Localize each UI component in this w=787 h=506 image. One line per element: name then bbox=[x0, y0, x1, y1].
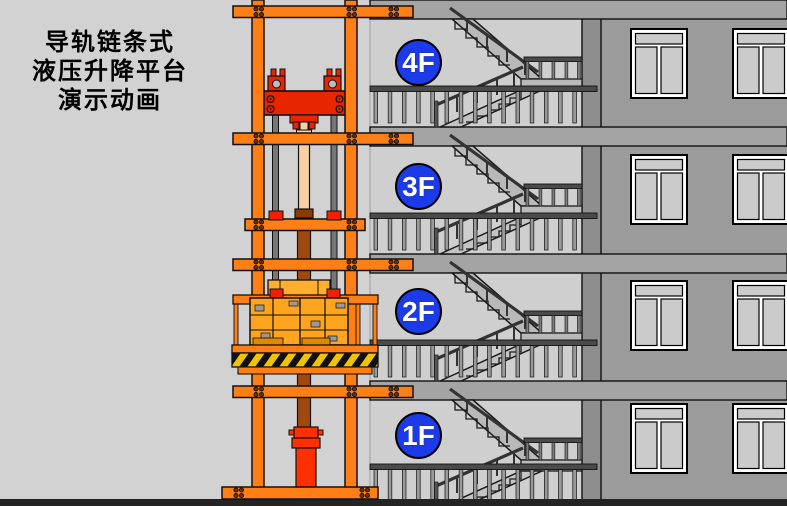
window bbox=[631, 29, 687, 98]
floor-badge-4f: 4F bbox=[395, 39, 442, 86]
corner-wall-strip bbox=[582, 0, 601, 500]
floor-badge-2f: 2F bbox=[395, 288, 442, 335]
platform-under-frame bbox=[238, 367, 372, 374]
lift-column-left bbox=[252, 0, 264, 489]
rod-collar bbox=[295, 209, 313, 218]
floor-badge-1f: 1F bbox=[395, 412, 442, 459]
window bbox=[631, 404, 687, 473]
hazard-stripe bbox=[232, 353, 378, 367]
title-caption: 导轨链条式 液压升降平台 演示动画 bbox=[8, 28, 212, 115]
floor-badge-3f: 3F bbox=[395, 163, 442, 210]
sprocket-left bbox=[273, 80, 281, 88]
window bbox=[733, 29, 787, 98]
title-line-1: 导轨链条式 bbox=[8, 28, 212, 57]
title-line-2: 液压升降平台 bbox=[8, 57, 212, 86]
chain-tensioner-right bbox=[327, 211, 341, 220]
demo-animation-canvas: { "title": { "lines": ["导轨链条式", "液压升降平台"… bbox=[0, 0, 787, 506]
cylinder-flange bbox=[292, 438, 320, 448]
cylinder-gland bbox=[294, 427, 318, 438]
window bbox=[631, 281, 687, 350]
window bbox=[733, 155, 787, 224]
window bbox=[733, 281, 787, 350]
ground-strip bbox=[0, 499, 787, 506]
platform-deck bbox=[232, 345, 378, 353]
title-line-3: 演示动画 bbox=[8, 86, 212, 115]
lift-column-right bbox=[345, 0, 357, 489]
sprocket-right bbox=[329, 80, 337, 88]
head-beam bbox=[263, 91, 347, 115]
chain-tensioner-left bbox=[269, 211, 283, 220]
lift-base-beam bbox=[222, 487, 378, 499]
window bbox=[733, 404, 787, 473]
window bbox=[631, 155, 687, 224]
cargo-boxes bbox=[250, 298, 348, 345]
piston-rod bbox=[299, 136, 310, 213]
